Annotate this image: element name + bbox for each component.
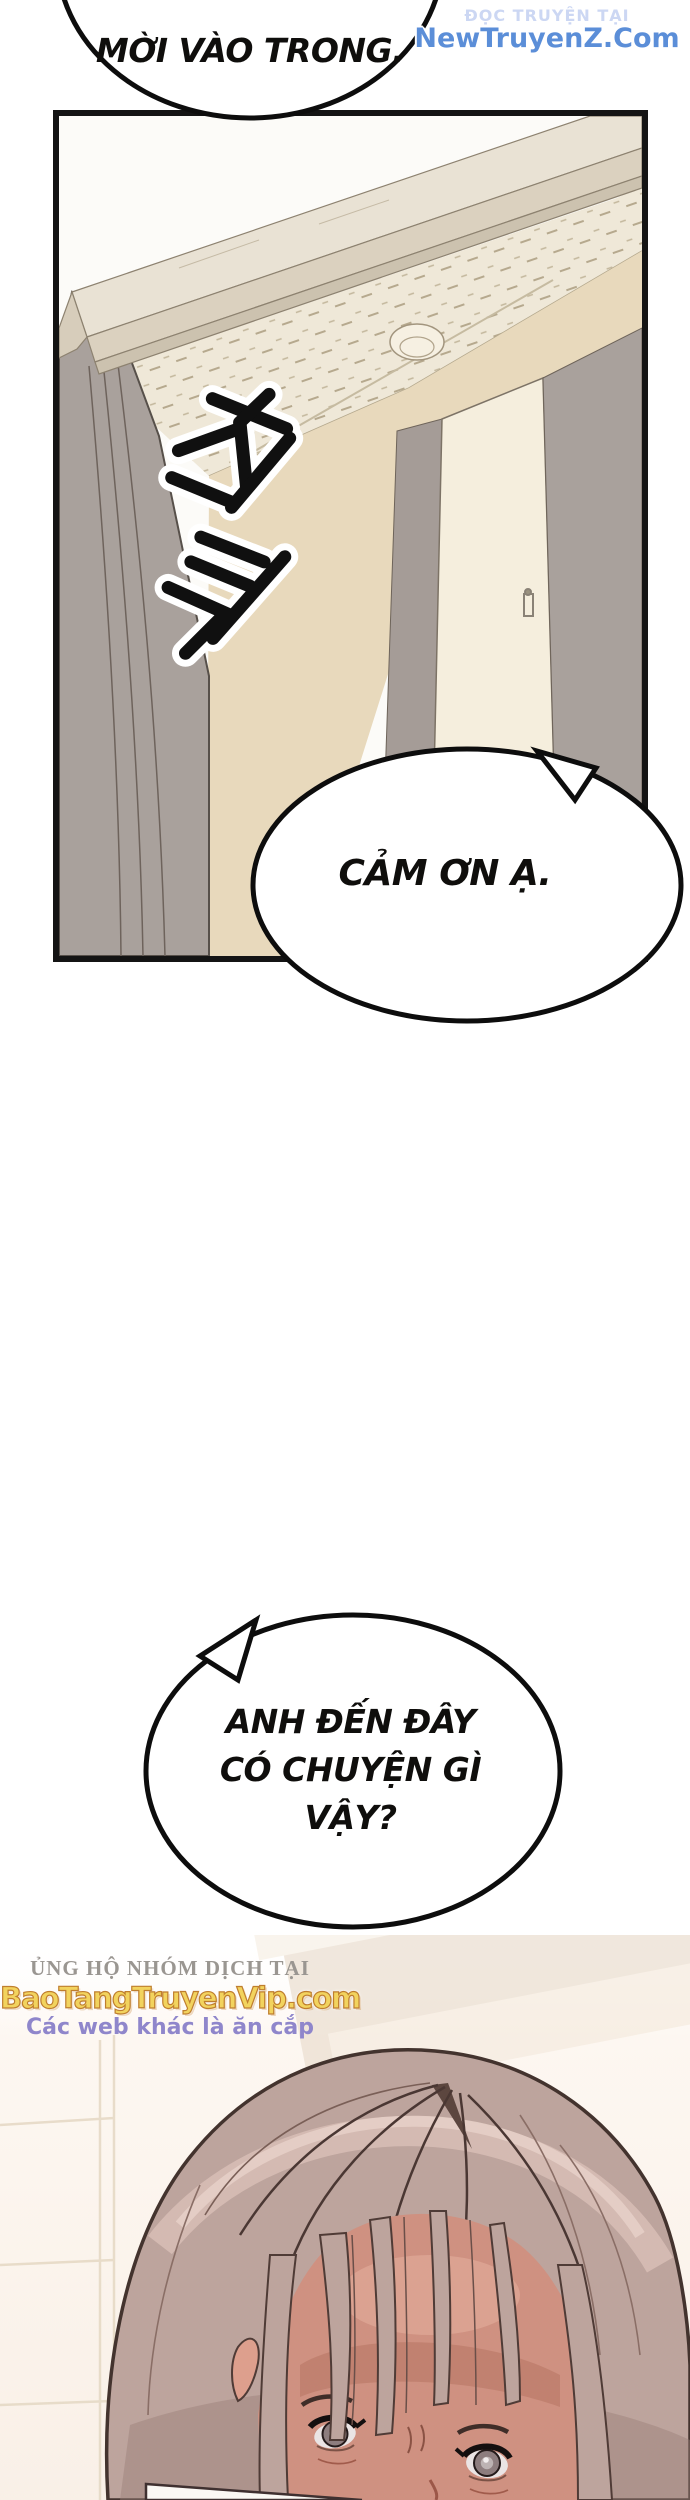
question-line-1: ANH ĐẾN ĐÂY xyxy=(138,1698,563,1746)
speech-text-question: ANH ĐẾN ĐÂY CÓ CHUYỆN GÌ VẬY? xyxy=(138,1698,563,1842)
site-watermark-top: ĐỌC TRUYỆN TẠI NewTruyenZ.Com xyxy=(404,8,690,53)
speech-bubble-invite: MỜI VÀO TRONG. xyxy=(52,0,448,125)
translator-line: ỦNG HỘ NHÓM DỊCH TẠI xyxy=(0,1956,340,1981)
watermark-site-name: NewTruyenZ.Com xyxy=(404,25,690,53)
translator-warning: Các web khác là ăn cắp xyxy=(0,2015,340,2041)
speech-text-invite: MỜI VÀO TRONG. xyxy=(52,28,448,74)
speech-text-thanks: CẢM ƠN Ạ. xyxy=(245,849,645,899)
speech-bubble-question: ANH ĐẾN ĐÂY CÓ CHUYỆN GÌ VẬY? xyxy=(138,1608,563,1933)
ceiling-light xyxy=(390,324,444,360)
question-line-2: CÓ CHUYỆN GÌ xyxy=(138,1746,563,1794)
speech-bubble-thanks: CẢM ƠN Ạ. xyxy=(245,745,685,1030)
translator-site-name: BaoTangTruyenVip.com xyxy=(0,1981,340,2015)
question-line-3: VẬY? xyxy=(138,1794,563,1842)
webtoon-page: 철컥 MỜI VÀO TRONG. CẢM ƠN Ạ. ANH ĐẾN ĐÂY … xyxy=(0,0,690,2500)
translator-watermark: ỦNG HỘ NHÓM DỊCH TẠI BaoTangTruyenVip.co… xyxy=(0,1956,340,2041)
sfx-drawing xyxy=(87,356,387,696)
